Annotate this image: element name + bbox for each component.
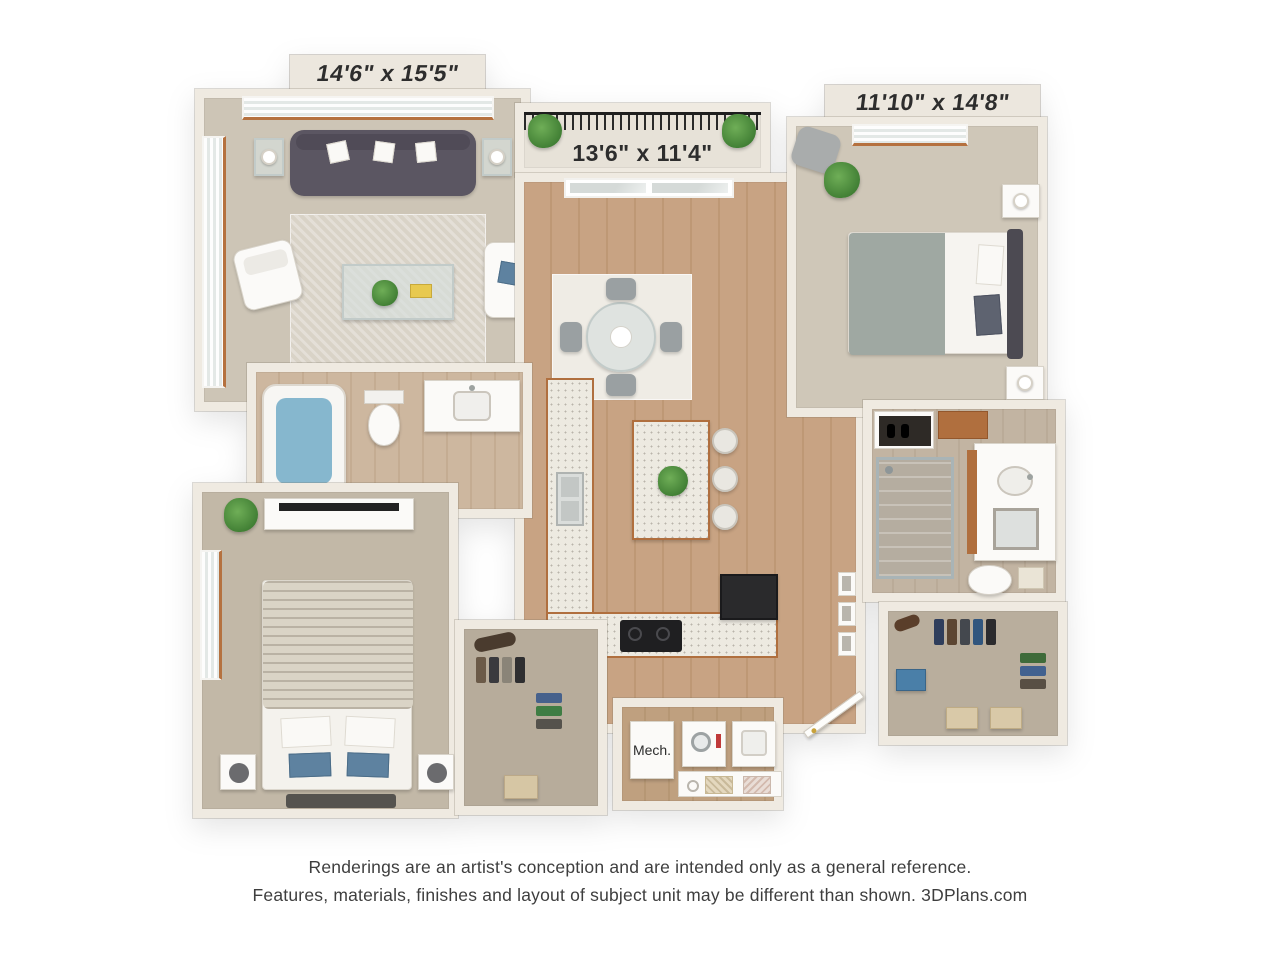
corner-cabinet bbox=[938, 411, 988, 439]
glass-pane bbox=[652, 183, 728, 193]
bedroom2-bed bbox=[262, 580, 412, 790]
sofa-pillow bbox=[373, 141, 396, 164]
bar-stool bbox=[712, 428, 738, 454]
entry bbox=[792, 690, 864, 724]
dining-chair bbox=[660, 322, 682, 352]
walk-in-closet-1 bbox=[879, 602, 1067, 745]
bed-pillow bbox=[280, 716, 332, 749]
master-toilet bbox=[968, 565, 1012, 595]
knit-blanket bbox=[263, 581, 413, 709]
kitchen-island bbox=[632, 420, 710, 540]
bed-pillow bbox=[344, 716, 396, 749]
nightstand bbox=[1002, 184, 1040, 218]
bed-pillow-dark bbox=[974, 294, 1003, 336]
nightstand-lamp bbox=[1013, 193, 1029, 209]
dining-chair bbox=[606, 278, 636, 300]
refrigerator bbox=[720, 574, 778, 620]
sofa bbox=[290, 130, 476, 196]
tv-console bbox=[264, 498, 414, 530]
kitchen-sink bbox=[556, 472, 584, 526]
nightstand-lamp bbox=[1017, 375, 1033, 391]
hanging-clothes bbox=[1020, 653, 1046, 689]
end-table bbox=[482, 138, 512, 176]
balcony: 13'6" x 11'4" bbox=[515, 103, 770, 177]
table-lamp bbox=[261, 149, 277, 165]
toilet bbox=[368, 404, 400, 446]
master-bathroom bbox=[863, 400, 1065, 602]
bedroom1-bed bbox=[848, 232, 1022, 354]
sofa-pillow bbox=[326, 140, 350, 164]
bed-blanket bbox=[849, 233, 945, 355]
sink-basin bbox=[561, 477, 579, 497]
frame-art bbox=[842, 576, 851, 591]
laundry-room: Mech. bbox=[613, 698, 783, 810]
dining-table bbox=[586, 302, 656, 372]
bedroom1-plant bbox=[824, 162, 860, 198]
mech-closet: Mech. bbox=[630, 721, 674, 779]
washer bbox=[682, 721, 726, 767]
bedroom-1 bbox=[787, 117, 1047, 417]
living-room-dimension-plate: 14'6" x 15'5" bbox=[290, 55, 485, 91]
bedroom1-dimension-plate: 11'10" x 14'8" bbox=[825, 85, 1040, 119]
walk-in-shower bbox=[876, 457, 954, 579]
vanity-cabinet bbox=[967, 450, 977, 554]
dining-chair bbox=[560, 322, 582, 352]
living-room-left-windows bbox=[202, 136, 226, 388]
toilet-tank bbox=[364, 390, 404, 404]
cubby-interior bbox=[879, 416, 931, 446]
mech-label: Mech. bbox=[633, 742, 671, 758]
armchair-cushion bbox=[242, 248, 289, 276]
shoes bbox=[887, 424, 895, 438]
picture-frame bbox=[838, 632, 856, 656]
bar-stool bbox=[712, 466, 738, 492]
bedroom2-plant bbox=[224, 498, 258, 532]
coffee-table bbox=[342, 264, 454, 320]
storage-bin-blue bbox=[896, 669, 926, 691]
duffel-bag bbox=[473, 631, 517, 653]
nightstand bbox=[220, 754, 256, 790]
dryer-door bbox=[741, 730, 767, 756]
bedroom1-window bbox=[852, 124, 968, 146]
glass-pane bbox=[570, 183, 646, 193]
nightstand bbox=[418, 754, 454, 790]
bedroom2-window bbox=[200, 550, 222, 680]
bed-pillow bbox=[976, 244, 1005, 286]
master-vanity bbox=[974, 443, 1056, 561]
hanging-clothes bbox=[536, 693, 562, 729]
woven-basket bbox=[743, 776, 771, 794]
end-table bbox=[254, 138, 284, 176]
burner bbox=[628, 627, 642, 641]
hanging-clothes bbox=[476, 657, 525, 683]
frame-art bbox=[842, 636, 851, 651]
floor-mat bbox=[286, 794, 396, 808]
hanging-clothes bbox=[934, 619, 996, 645]
door-handle bbox=[810, 727, 817, 734]
balcony-dimensions: 13'6" x 11'4" bbox=[524, 140, 761, 167]
stove-cooktop bbox=[620, 620, 682, 652]
laundry-shelf bbox=[678, 771, 782, 797]
mirror bbox=[993, 508, 1039, 550]
burner bbox=[656, 627, 670, 641]
headboard bbox=[1007, 229, 1023, 359]
disclaimer-line-2: Features, materials, finishes and layout… bbox=[0, 885, 1280, 906]
coffee-table-plant bbox=[372, 280, 398, 306]
sliding-glass-door bbox=[564, 178, 734, 198]
blue-pillow bbox=[347, 752, 390, 777]
island-plant bbox=[658, 466, 688, 496]
shower-head bbox=[885, 466, 893, 474]
dryer bbox=[732, 721, 776, 767]
faucet bbox=[469, 385, 475, 391]
bathtub bbox=[262, 384, 346, 498]
dining-chair bbox=[606, 374, 636, 396]
towel bbox=[1018, 567, 1044, 589]
vanity-sink bbox=[997, 466, 1033, 496]
sofa-pillow bbox=[415, 141, 437, 163]
round-lamp bbox=[427, 763, 447, 783]
television bbox=[279, 503, 399, 511]
washer-buttons bbox=[716, 734, 721, 748]
picture-frame bbox=[838, 572, 856, 596]
picture-frame bbox=[838, 602, 856, 626]
disclaimer-line-1: Renderings are an artist's conception an… bbox=[0, 857, 1280, 878]
floorplan-page: { "labels": { "living": "14'6\" x 15'5\"… bbox=[0, 0, 1280, 960]
entry-door bbox=[803, 691, 864, 739]
bar-stool bbox=[712, 504, 738, 530]
walk-in-closet-2 bbox=[455, 620, 607, 815]
bag bbox=[893, 613, 922, 633]
books bbox=[410, 284, 432, 298]
floor-plan: 14'6" x 15'5" 11'10" x 14'8" bbox=[185, 55, 1070, 855]
nightstand bbox=[1006, 366, 1044, 400]
bathroom2-vanity bbox=[424, 380, 520, 432]
storage-box bbox=[946, 707, 978, 729]
bedroom1-dimensions: 11'10" x 14'8" bbox=[854, 89, 1011, 116]
centerpiece bbox=[610, 326, 632, 348]
decor-ring bbox=[687, 780, 699, 792]
shoe-cubby bbox=[874, 411, 934, 449]
storage-box bbox=[990, 707, 1022, 729]
woven-basket bbox=[705, 776, 733, 794]
tub-water bbox=[276, 398, 332, 484]
living-room-top-windows bbox=[242, 96, 494, 120]
living-room-dimensions: 14'6" x 15'5" bbox=[314, 60, 460, 87]
vanity-sink bbox=[453, 391, 491, 421]
table-lamp bbox=[489, 149, 505, 165]
bedroom-2 bbox=[193, 483, 458, 818]
round-lamp bbox=[229, 763, 249, 783]
storage-box bbox=[504, 775, 538, 799]
shoes bbox=[901, 424, 909, 438]
washer-dial bbox=[691, 732, 711, 752]
faucet bbox=[1027, 474, 1033, 480]
sink-basin bbox=[561, 501, 579, 521]
blue-pillow bbox=[289, 752, 332, 777]
frame-art bbox=[842, 606, 851, 621]
